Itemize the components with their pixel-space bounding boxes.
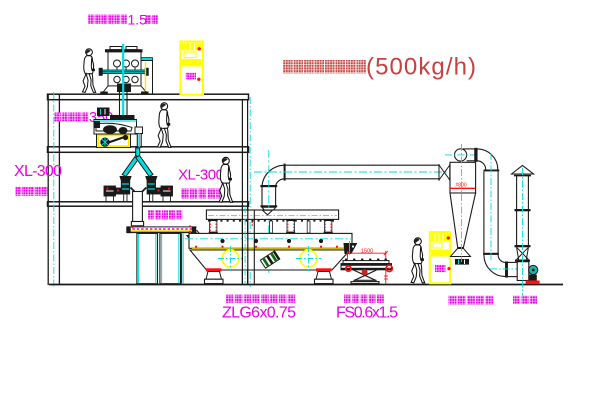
svg-text:ZLG6x0.75: ZLG6x0.75 [222,305,296,322]
svg-text:1500: 1500 [361,249,373,255]
svg-text:1.5: 1.5 [128,12,148,28]
svg-text:XL-300: XL-300 [14,163,62,180]
svg-text:XL-300: XL-300 [178,167,224,184]
svg-text:(500kg/h): (500kg/h) [366,54,476,81]
svg-text:FS0.6x1.5: FS0.6x1.5 [336,305,398,322]
